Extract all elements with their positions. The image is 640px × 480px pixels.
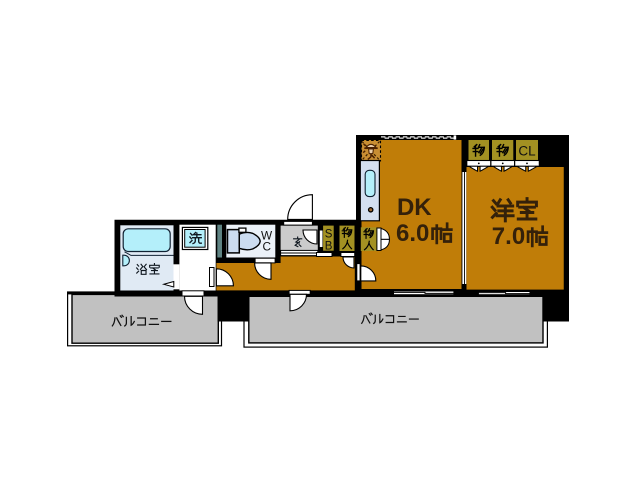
- svg-text:C: C: [263, 239, 272, 253]
- svg-text:S: S: [325, 228, 333, 240]
- svg-text:6.0: 6.0: [396, 220, 429, 247]
- svg-text:CL: CL: [518, 143, 536, 158]
- svg-text:B: B: [325, 241, 333, 253]
- svg-text:7.0: 7.0: [492, 223, 525, 250]
- svg-text:DK: DK: [397, 194, 432, 221]
